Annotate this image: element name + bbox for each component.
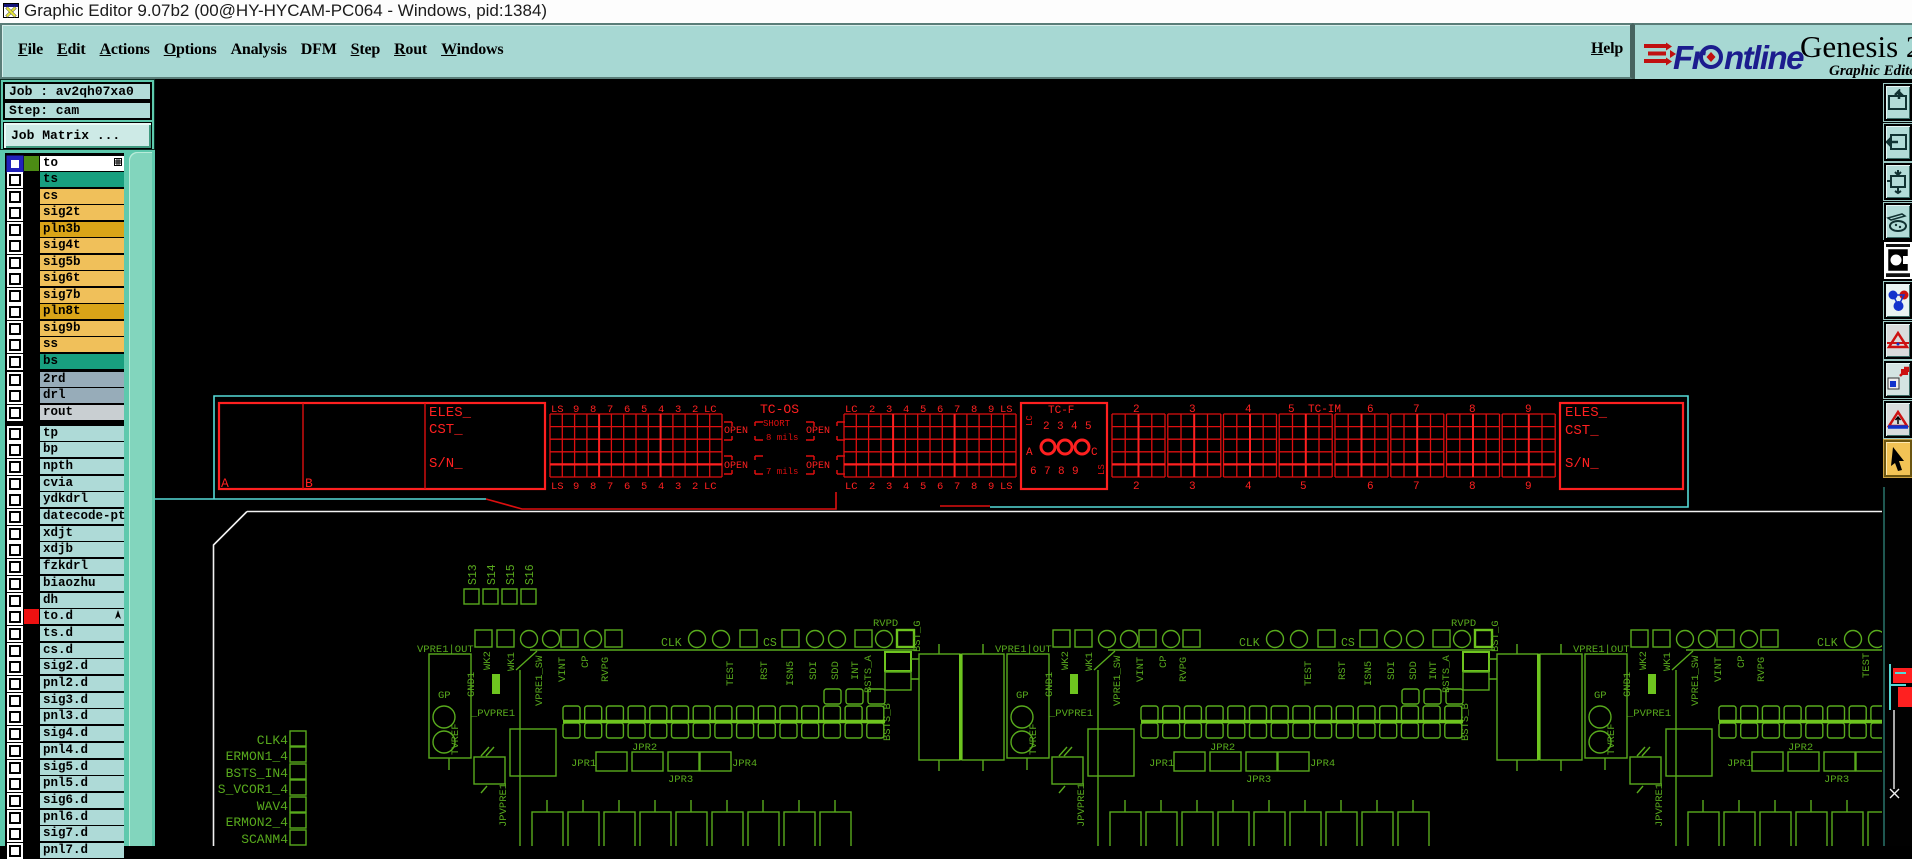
svg-text:LC: LC: [845, 481, 858, 493]
svg-text:5: 5: [641, 481, 647, 493]
svg-text:WAV4: WAV4: [257, 799, 288, 814]
svg-text:9: 9: [1525, 481, 1532, 493]
svg-text:8: 8: [1469, 481, 1476, 493]
svg-text:9: 9: [573, 481, 579, 493]
svg-text:S13: S13: [467, 564, 480, 585]
svg-text:6: 6: [1367, 481, 1374, 493]
svg-text:TC-OS: TC-OS: [760, 402, 799, 417]
svg-text:7: 7: [607, 404, 613, 416]
svg-text:4: 4: [658, 404, 664, 416]
svg-text:TC-F: TC-F: [1048, 405, 1074, 417]
svg-text:C: C: [1091, 447, 1098, 459]
svg-text:4: 4: [1245, 404, 1252, 416]
svg-text:3: 3: [886, 404, 892, 416]
svg-text:6: 6: [937, 481, 943, 493]
svg-text:5: 5: [920, 481, 926, 493]
svg-text:LS: LS: [1000, 481, 1013, 493]
svg-text:8: 8: [971, 481, 977, 493]
svg-text:TEST: TEST: [1861, 653, 1873, 678]
svg-text:ERMON1_4: ERMON1_4: [226, 749, 289, 764]
svg-text:6: 6: [937, 404, 943, 416]
svg-text:4: 4: [1071, 421, 1078, 433]
svg-text:LC: LC: [1025, 415, 1035, 426]
svg-text:4: 4: [903, 404, 909, 416]
svg-text:ELES_: ELES_: [429, 405, 472, 421]
svg-text:5: 5: [920, 404, 926, 416]
svg-text:2: 2: [1133, 404, 1140, 416]
svg-text:8: 8: [1469, 404, 1476, 416]
svg-text:OPEN: OPEN: [806, 461, 830, 472]
svg-text:3: 3: [675, 481, 681, 493]
svg-text:LC: LC: [845, 404, 858, 416]
svg-text:S15: S15: [505, 564, 518, 585]
svg-text:9: 9: [573, 404, 579, 416]
svg-text:6: 6: [624, 404, 630, 416]
svg-text:ERMON2_4: ERMON2_4: [226, 815, 289, 830]
svg-text:3: 3: [1189, 404, 1196, 416]
svg-text:5: 5: [1288, 404, 1295, 416]
svg-text:S14: S14: [486, 564, 499, 585]
svg-text:3: 3: [1057, 421, 1064, 433]
svg-text:LS: LS: [551, 481, 564, 493]
svg-text:2: 2: [1133, 481, 1140, 493]
svg-text:OPEN: OPEN: [724, 461, 748, 472]
svg-text:7 mils: 7 mils: [766, 467, 798, 477]
svg-text:8 mils: 8 mils: [766, 433, 798, 443]
svg-text:A: A: [221, 476, 229, 491]
svg-text:BSTS_IN4: BSTS_IN4: [226, 766, 289, 781]
svg-text:3: 3: [1189, 481, 1196, 493]
svg-text:CLK4: CLK4: [257, 733, 288, 748]
svg-text:8: 8: [1058, 466, 1065, 478]
svg-text:7: 7: [1044, 466, 1051, 478]
svg-text:2: 2: [692, 404, 698, 416]
svg-text:OPEN: OPEN: [806, 426, 830, 437]
svg-text:S_VCOR1_4: S_VCOR1_4: [218, 782, 288, 797]
svg-text:7: 7: [607, 481, 613, 493]
svg-text:LS: LS: [1000, 404, 1013, 416]
svg-text:ELES_: ELES_: [1565, 405, 1608, 421]
svg-text:SHORT: SHORT: [763, 419, 791, 429]
svg-text:5: 5: [1085, 421, 1092, 433]
svg-text:7: 7: [954, 481, 960, 493]
svg-text:LS: LS: [551, 404, 564, 416]
svg-text:2: 2: [869, 481, 875, 493]
svg-text:LS: LS: [1097, 464, 1107, 475]
svg-text:2: 2: [869, 404, 875, 416]
svg-text:A: A: [1026, 447, 1033, 459]
svg-text:SCANM4: SCANM4: [241, 832, 288, 846]
svg-text:8: 8: [971, 404, 977, 416]
svg-text:S/N_: S/N_: [429, 456, 463, 472]
svg-text:9: 9: [1525, 404, 1532, 416]
svg-text:4: 4: [1245, 481, 1252, 493]
svg-text:4: 4: [658, 481, 664, 493]
svg-text:8: 8: [590, 481, 596, 493]
svg-text:6: 6: [1030, 466, 1037, 478]
svg-text:OPEN: OPEN: [724, 426, 748, 437]
svg-text:3: 3: [675, 404, 681, 416]
svg-text:ntline: ntline: [1724, 39, 1804, 76]
svg-text:7: 7: [1413, 481, 1420, 493]
svg-text:3: 3: [886, 481, 892, 493]
svg-text:TC-IM: TC-IM: [1308, 404, 1341, 416]
svg-text:5: 5: [1300, 481, 1307, 493]
svg-text:LC: LC: [704, 481, 717, 493]
svg-text:9: 9: [1072, 466, 1079, 478]
svg-text:S16: S16: [524, 564, 537, 585]
svg-text:6: 6: [1367, 404, 1374, 416]
svg-text:9: 9: [988, 404, 994, 416]
svg-text:S/N_: S/N_: [1565, 456, 1599, 472]
svg-text:7: 7: [954, 404, 960, 416]
svg-text:9: 9: [988, 481, 994, 493]
svg-text:4: 4: [903, 481, 909, 493]
svg-text:B: B: [305, 476, 313, 491]
svg-text:2: 2: [692, 481, 698, 493]
svg-text:CST_: CST_: [429, 422, 463, 438]
svg-text:6: 6: [624, 481, 630, 493]
svg-text:LC: LC: [704, 404, 717, 416]
svg-text:2: 2: [1043, 421, 1050, 433]
svg-text:7: 7: [1413, 404, 1420, 416]
svg-text:CST_: CST_: [1565, 423, 1599, 439]
svg-text:8: 8: [590, 404, 596, 416]
svg-text:5: 5: [641, 404, 647, 416]
